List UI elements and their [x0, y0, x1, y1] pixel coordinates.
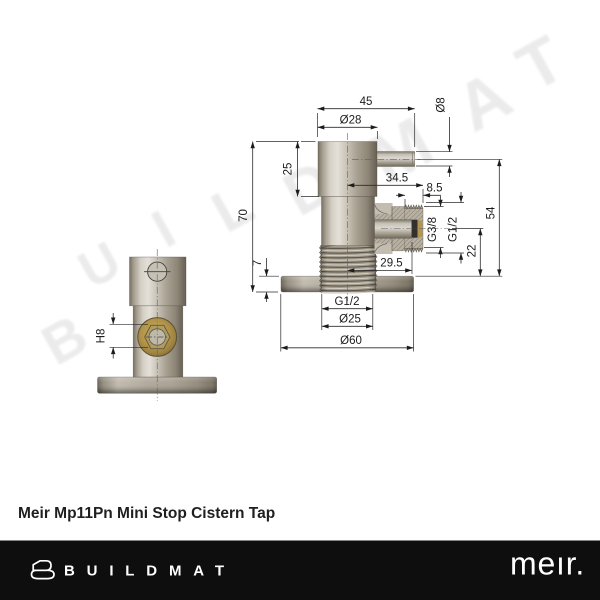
svg-text:Ø60: Ø60	[340, 335, 362, 347]
svg-text:Ø25: Ø25	[339, 314, 361, 326]
svg-text:G1/2: G1/2	[448, 217, 460, 242]
svg-text:Ø8: Ø8	[436, 97, 448, 112]
svg-text:G3/8: G3/8	[427, 217, 439, 242]
svg-text:70: 70	[238, 209, 250, 222]
svg-text:45: 45	[360, 96, 373, 108]
svg-text:7: 7	[252, 260, 264, 266]
svg-text:Meir Mp11Pn Mini Stop Cistern: Meir Mp11Pn Mini Stop Cistern Tap	[18, 505, 275, 522]
svg-text:BUILDMAT: BUILDMAT	[64, 563, 234, 580]
svg-text:Ø28: Ø28	[340, 115, 362, 127]
svg-text:34.5: 34.5	[386, 173, 408, 185]
svg-text:G1/2: G1/2	[335, 296, 360, 308]
svg-text:54: 54	[486, 206, 498, 219]
svg-text:meır.: meır.	[510, 546, 585, 582]
svg-text:8.5: 8.5	[427, 183, 443, 195]
svg-text:29.5: 29.5	[380, 258, 402, 270]
svg-text:22: 22	[467, 245, 479, 258]
svg-text:H8: H8	[96, 329, 108, 344]
svg-text:25: 25	[283, 163, 295, 176]
